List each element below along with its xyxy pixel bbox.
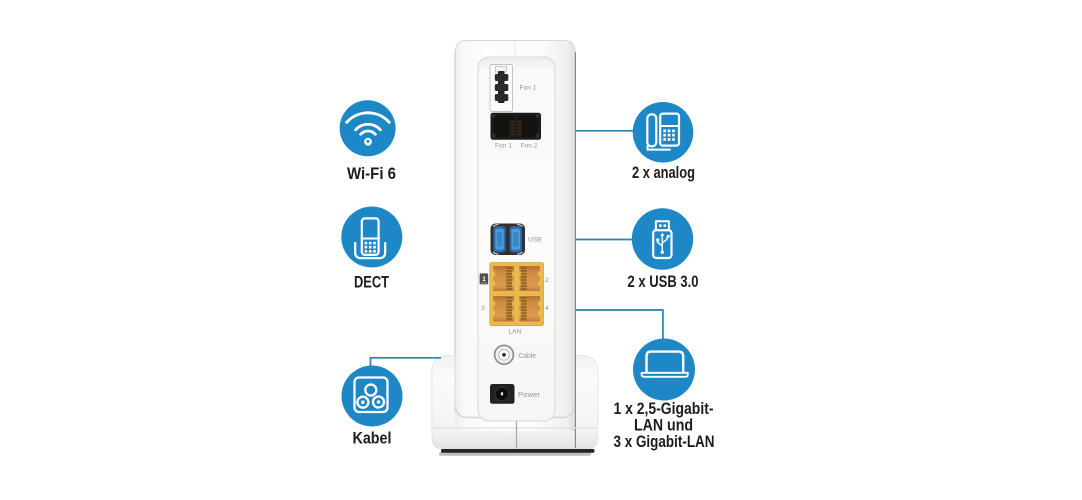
svg-text:Power: Power (518, 392, 541, 399)
svg-text:4: 4 (545, 305, 549, 312)
svg-text:Fon 2: Fon 2 (521, 143, 538, 150)
svg-text:Cable: Cable (518, 353, 536, 360)
svg-text:2 x USB 3.0: 2 x USB 3.0 (628, 273, 699, 291)
svg-text:3: 3 (481, 305, 485, 312)
svg-text:Kabel: Kabel (353, 430, 392, 448)
svg-text:Fon 1: Fon 1 (520, 85, 537, 92)
svg-text:3 x Gigabit-LAN: 3 x Gigabit-LAN (614, 433, 715, 451)
svg-text:LAN: LAN (509, 329, 522, 336)
svg-text:Fon 1: Fon 1 (495, 143, 512, 150)
svg-text:1: 1 (482, 276, 486, 283)
svg-text:2 x analog: 2 x analog (632, 164, 695, 182)
svg-text:1 x 2,5-Gigabit-: 1 x 2,5-Gigabit- (614, 400, 714, 418)
svg-text:LAN und: LAN und (634, 417, 693, 435)
svg-text:2: 2 (545, 277, 549, 284)
svg-text:Wi-Fi 6: Wi-Fi 6 (347, 165, 396, 183)
svg-text:USB: USB (528, 237, 542, 244)
svg-text:DECT: DECT (354, 274, 389, 292)
